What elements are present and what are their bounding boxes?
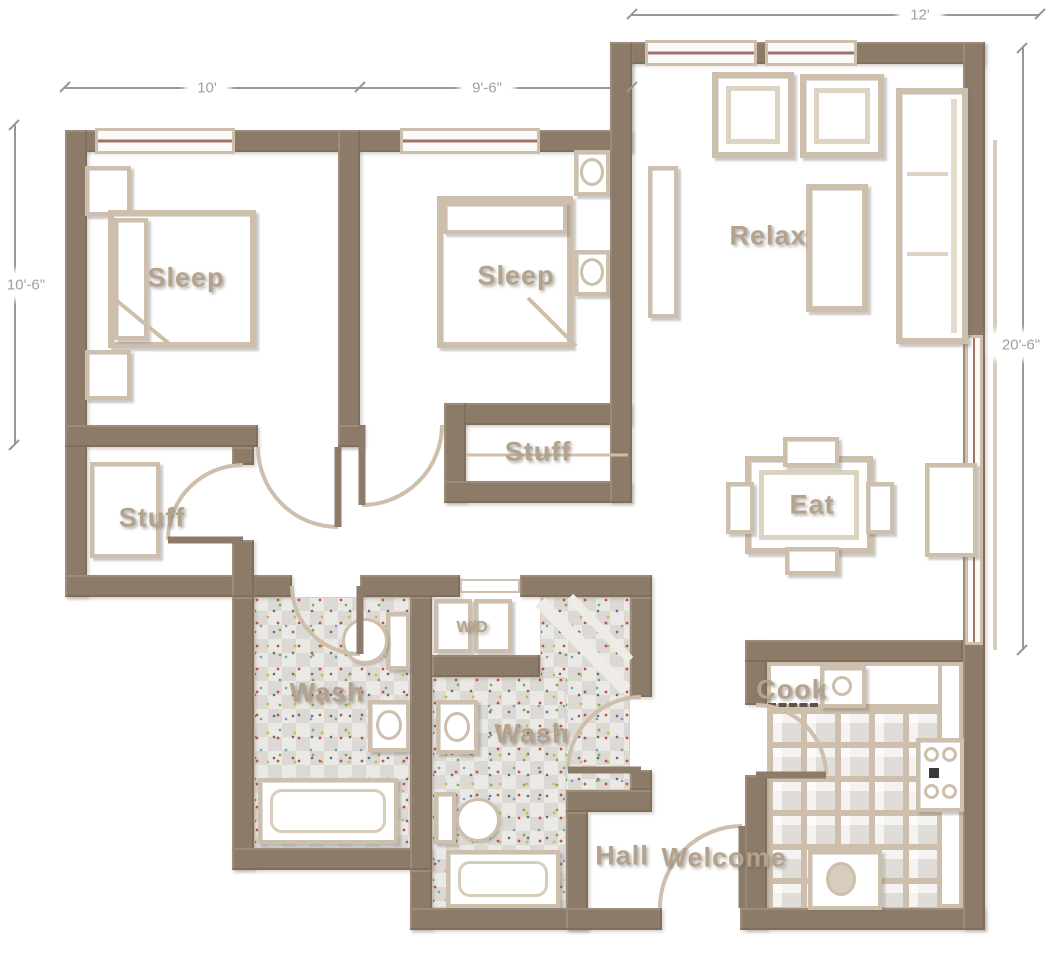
room-label-kitchen: Cook (756, 675, 828, 706)
coffee-table (806, 184, 868, 312)
wall-closet2-top (444, 403, 632, 425)
burner-icon (924, 747, 939, 762)
room-label-bedroom1: Sleep (147, 263, 224, 294)
wall-living-left (610, 42, 632, 503)
bathtub-basin (458, 861, 548, 897)
sideboard (925, 463, 977, 557)
room-label-bedroom2: Sleep (477, 261, 554, 292)
bathtub-basin (270, 789, 386, 833)
dimension-line-top-bedrooms (65, 87, 632, 89)
wall-bath1-left (232, 597, 254, 870)
window-living-1 (645, 40, 757, 66)
wall-bottom-hall (566, 908, 662, 930)
dimension-label-top-left: 10' (189, 78, 225, 99)
wall-laundry-bottom (432, 655, 540, 677)
burner-icon (942, 747, 957, 762)
bed-1-pillow (114, 218, 148, 340)
burner-icon (924, 784, 939, 799)
wall-closet1-right-bottom (232, 540, 254, 597)
wall-closet2-bottom (444, 481, 632, 503)
bed-2-pillow (443, 202, 567, 234)
dining-chair-bottom (785, 547, 839, 575)
lamp-icon (580, 258, 604, 286)
sink-basin (376, 710, 402, 740)
wall-bath2-right-upper (630, 597, 652, 697)
stove-control (929, 768, 939, 778)
dimension-line-top-living (632, 14, 1040, 16)
dimension-label-top-middle: 9'-6" (464, 78, 510, 99)
nightstand (85, 350, 131, 400)
wall-bath2-bottom (410, 908, 588, 930)
appliance-icon (826, 862, 856, 896)
armchair-seat (726, 86, 780, 144)
sofa-cushion-line (907, 172, 948, 176)
sink-basin (444, 712, 470, 742)
wall-closet1-bottom (65, 575, 254, 597)
wall-left (65, 130, 87, 597)
room-label-bath2: Wash (494, 719, 569, 750)
tv-console (648, 166, 678, 318)
sink-drain (832, 676, 852, 696)
armchair-1 (712, 72, 794, 158)
room-label-living: Relax (729, 221, 806, 252)
room-label-laundry: W/D (456, 619, 487, 637)
laundry-door-slab (460, 579, 520, 593)
sofa-back (951, 99, 957, 333)
wall-hall-bottom-b (360, 575, 460, 597)
wall-kitchen-top (745, 640, 963, 662)
wall-bath2-right-stub (630, 770, 652, 790)
room-label-dining: Eat (789, 490, 834, 521)
dimension-label-left: 10'-6" (0, 275, 53, 296)
wall-bedroom-divider (338, 130, 360, 447)
window-sill-line (993, 140, 997, 650)
nightstand (85, 166, 131, 216)
wall-bath1-right (410, 597, 432, 870)
wall-bottom-kitchen (740, 908, 985, 930)
stove (916, 738, 964, 812)
dimension-label-right: 20'-6" (994, 335, 1048, 356)
toilet-tank (434, 792, 456, 844)
wall-bath1-bottom (232, 848, 432, 870)
room-label-closet-left: Stuff (119, 503, 185, 534)
toilet-tank (386, 612, 410, 670)
room-label-bath1: Wash (289, 678, 364, 709)
dining-chair-left (726, 482, 754, 534)
window-bedroom2 (400, 128, 540, 154)
window-bedroom1 (95, 128, 235, 154)
dining-chair-top (783, 437, 839, 467)
wall-hall-bottom-c (520, 575, 652, 597)
door-arc-bedroom1 (258, 447, 338, 527)
window-living-2 (765, 40, 857, 66)
sofa-cushion-line (907, 252, 948, 256)
bathtub (446, 850, 560, 908)
dining-chair-right (866, 482, 894, 534)
dimension-label-top-right: 12' (902, 5, 938, 26)
wall-bedroom2-bottom-stub (338, 425, 364, 447)
armchair-2 (800, 74, 884, 158)
sofa (896, 88, 968, 344)
lamp-icon (580, 158, 604, 186)
room-label-closet-right: Stuff (505, 437, 571, 468)
armchair-seat (814, 88, 870, 144)
toilet-bowl (456, 798, 500, 842)
wall-closet1-right-top (232, 447, 254, 465)
wall-bath2-step (566, 790, 652, 812)
floor-plan: Sleep Sleep Relax Eat Stuff Stuff Wash W… (0, 0, 1053, 961)
room-label-entry: Welcome (661, 843, 786, 874)
room-label-hall: Hall (595, 841, 649, 872)
toilet-bowl (342, 618, 388, 664)
door-arc-bedroom2 (362, 425, 442, 505)
bathtub (258, 778, 398, 844)
burner-icon (942, 784, 957, 799)
wall-bedroom1-bottom (65, 425, 258, 447)
